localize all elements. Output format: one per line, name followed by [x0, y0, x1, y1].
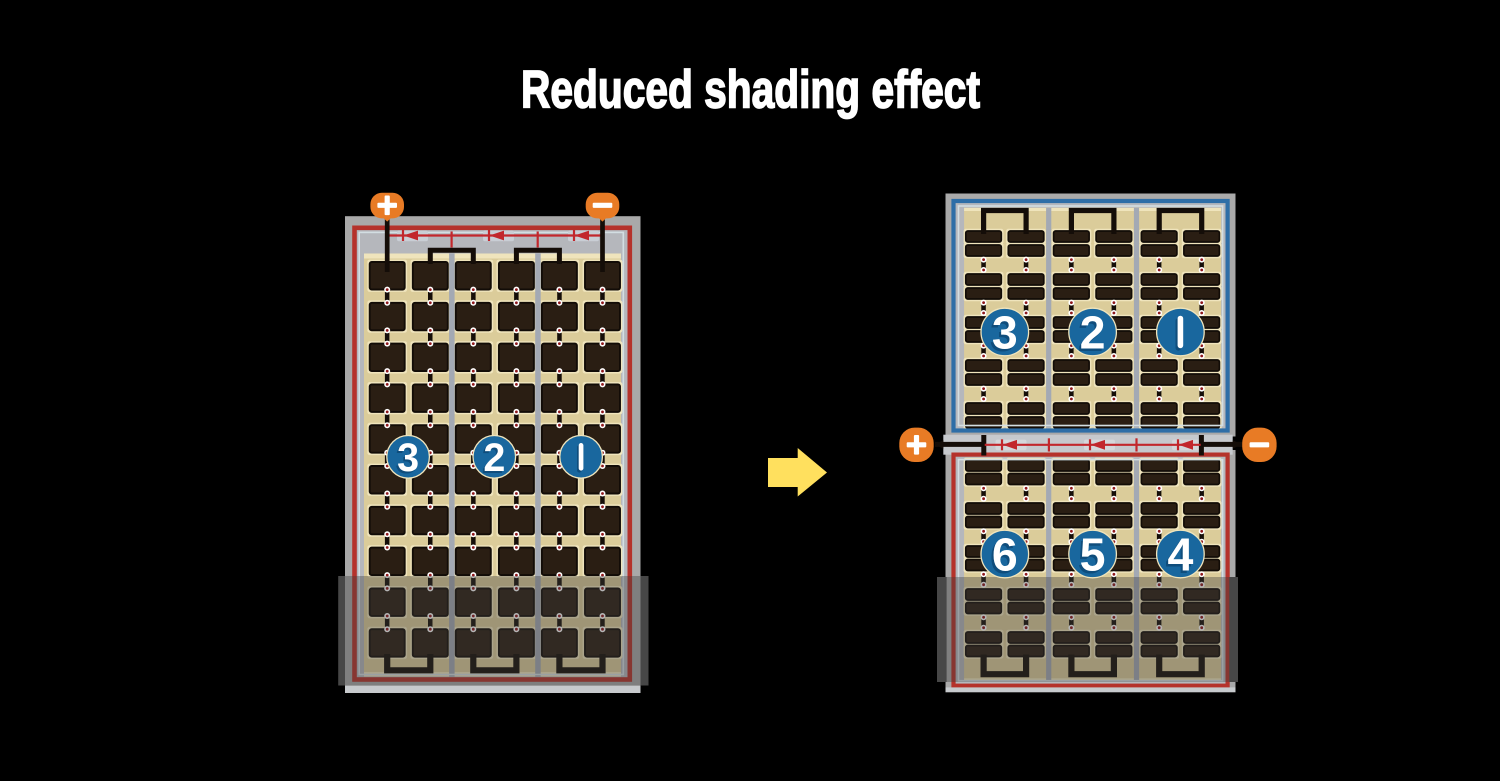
svg-text:6: 6 — [992, 529, 1018, 581]
svg-text:5: 5 — [1080, 529, 1106, 581]
svg-text:4: 4 — [1167, 529, 1193, 581]
svg-text:2: 2 — [483, 436, 505, 480]
svg-text:3: 3 — [992, 307, 1018, 359]
svg-text:3: 3 — [397, 436, 419, 480]
svg-text:Reduced shading effect: Reduced shading effect — [521, 61, 980, 120]
svg-text:2: 2 — [1080, 307, 1106, 359]
